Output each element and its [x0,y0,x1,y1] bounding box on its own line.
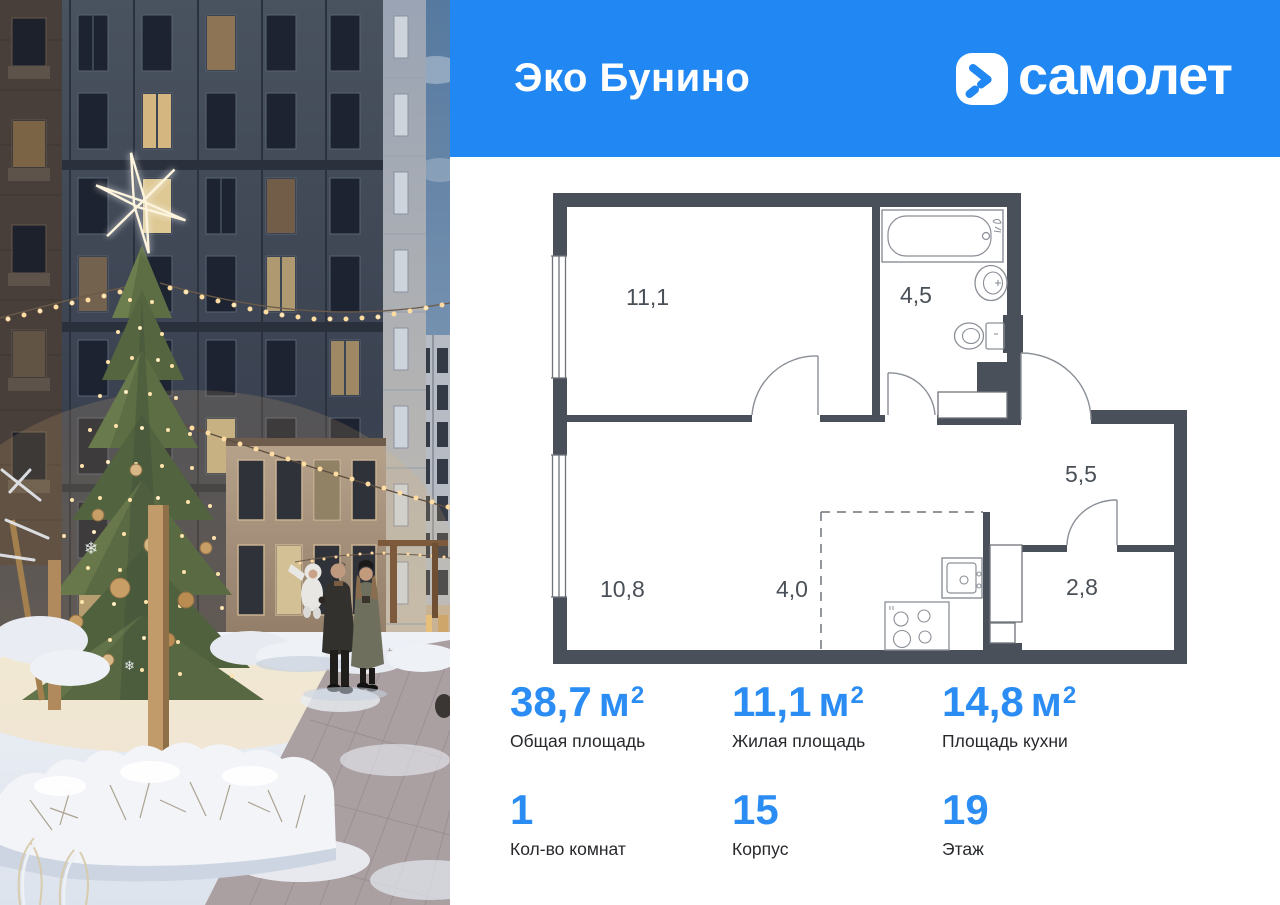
stat-label: Кол-во комнат [510,839,725,860]
toilet-icon [955,323,1005,349]
sink-icon [975,266,1007,301]
room-area-label: 11,1 [626,284,669,310]
stat-label: Корпус [732,839,947,860]
stat-building: 15 Корпус [732,789,947,860]
brand-name: самолет [1018,45,1232,107]
project-title: Эко Бунино [450,56,750,101]
stat-value: 14,8 [942,678,1024,725]
stat-living-area: 11,1м2 Жилая площадь [732,681,947,752]
stove-icon [885,602,949,650]
stat-label: Общая площадь [510,731,725,752]
stat-label: Этаж [942,839,1157,860]
floor-plan: 11,1 4,5 5,5 10,8 4,0 2,8 [550,193,1190,673]
listing-card: ❄ ❄ ❄ [0,0,1280,905]
wardrobe [990,545,1022,622]
brand-logo: самолет [956,51,1232,107]
stat-label: Площадь кухни [942,731,1157,752]
stat-value: 38,7 [510,678,592,725]
stat-value: 11,1 [732,678,811,725]
courtyard-photo: ❄ ❄ ❄ [0,0,450,905]
shaft-box [938,392,1007,418]
stat-label: Жилая площадь [732,731,947,752]
stat-total-area: 38,7м2 Общая площадь [510,681,725,752]
snowflake-ornament-icon: ❄ [84,539,98,559]
room-area-label: 2,8 [1066,574,1098,600]
stat-floor: 19 Этаж [942,789,1157,860]
room-area-label: 10,8 [600,576,645,602]
bathtub-icon [882,210,1003,262]
cabinet [990,623,1015,643]
doors [752,353,1117,545]
kitchen-sink-icon [942,558,982,598]
room-area-label: 4,0 [776,576,808,602]
room-area-label: 4,5 [900,282,932,308]
snowflake-ornament-icon: ❄ [124,659,135,674]
stat-kitchen-area: 14,8м2 Площадь кухни [942,681,1157,752]
header-bar: Эко Бунино самолет [450,0,1280,157]
room-area-label: 5,5 [1065,461,1097,487]
info-panel: Эко Бунино самолет [450,0,1280,905]
samolet-logo-icon [956,53,1008,105]
stat-rooms-count: 1 Кол-во комнат [510,789,725,860]
